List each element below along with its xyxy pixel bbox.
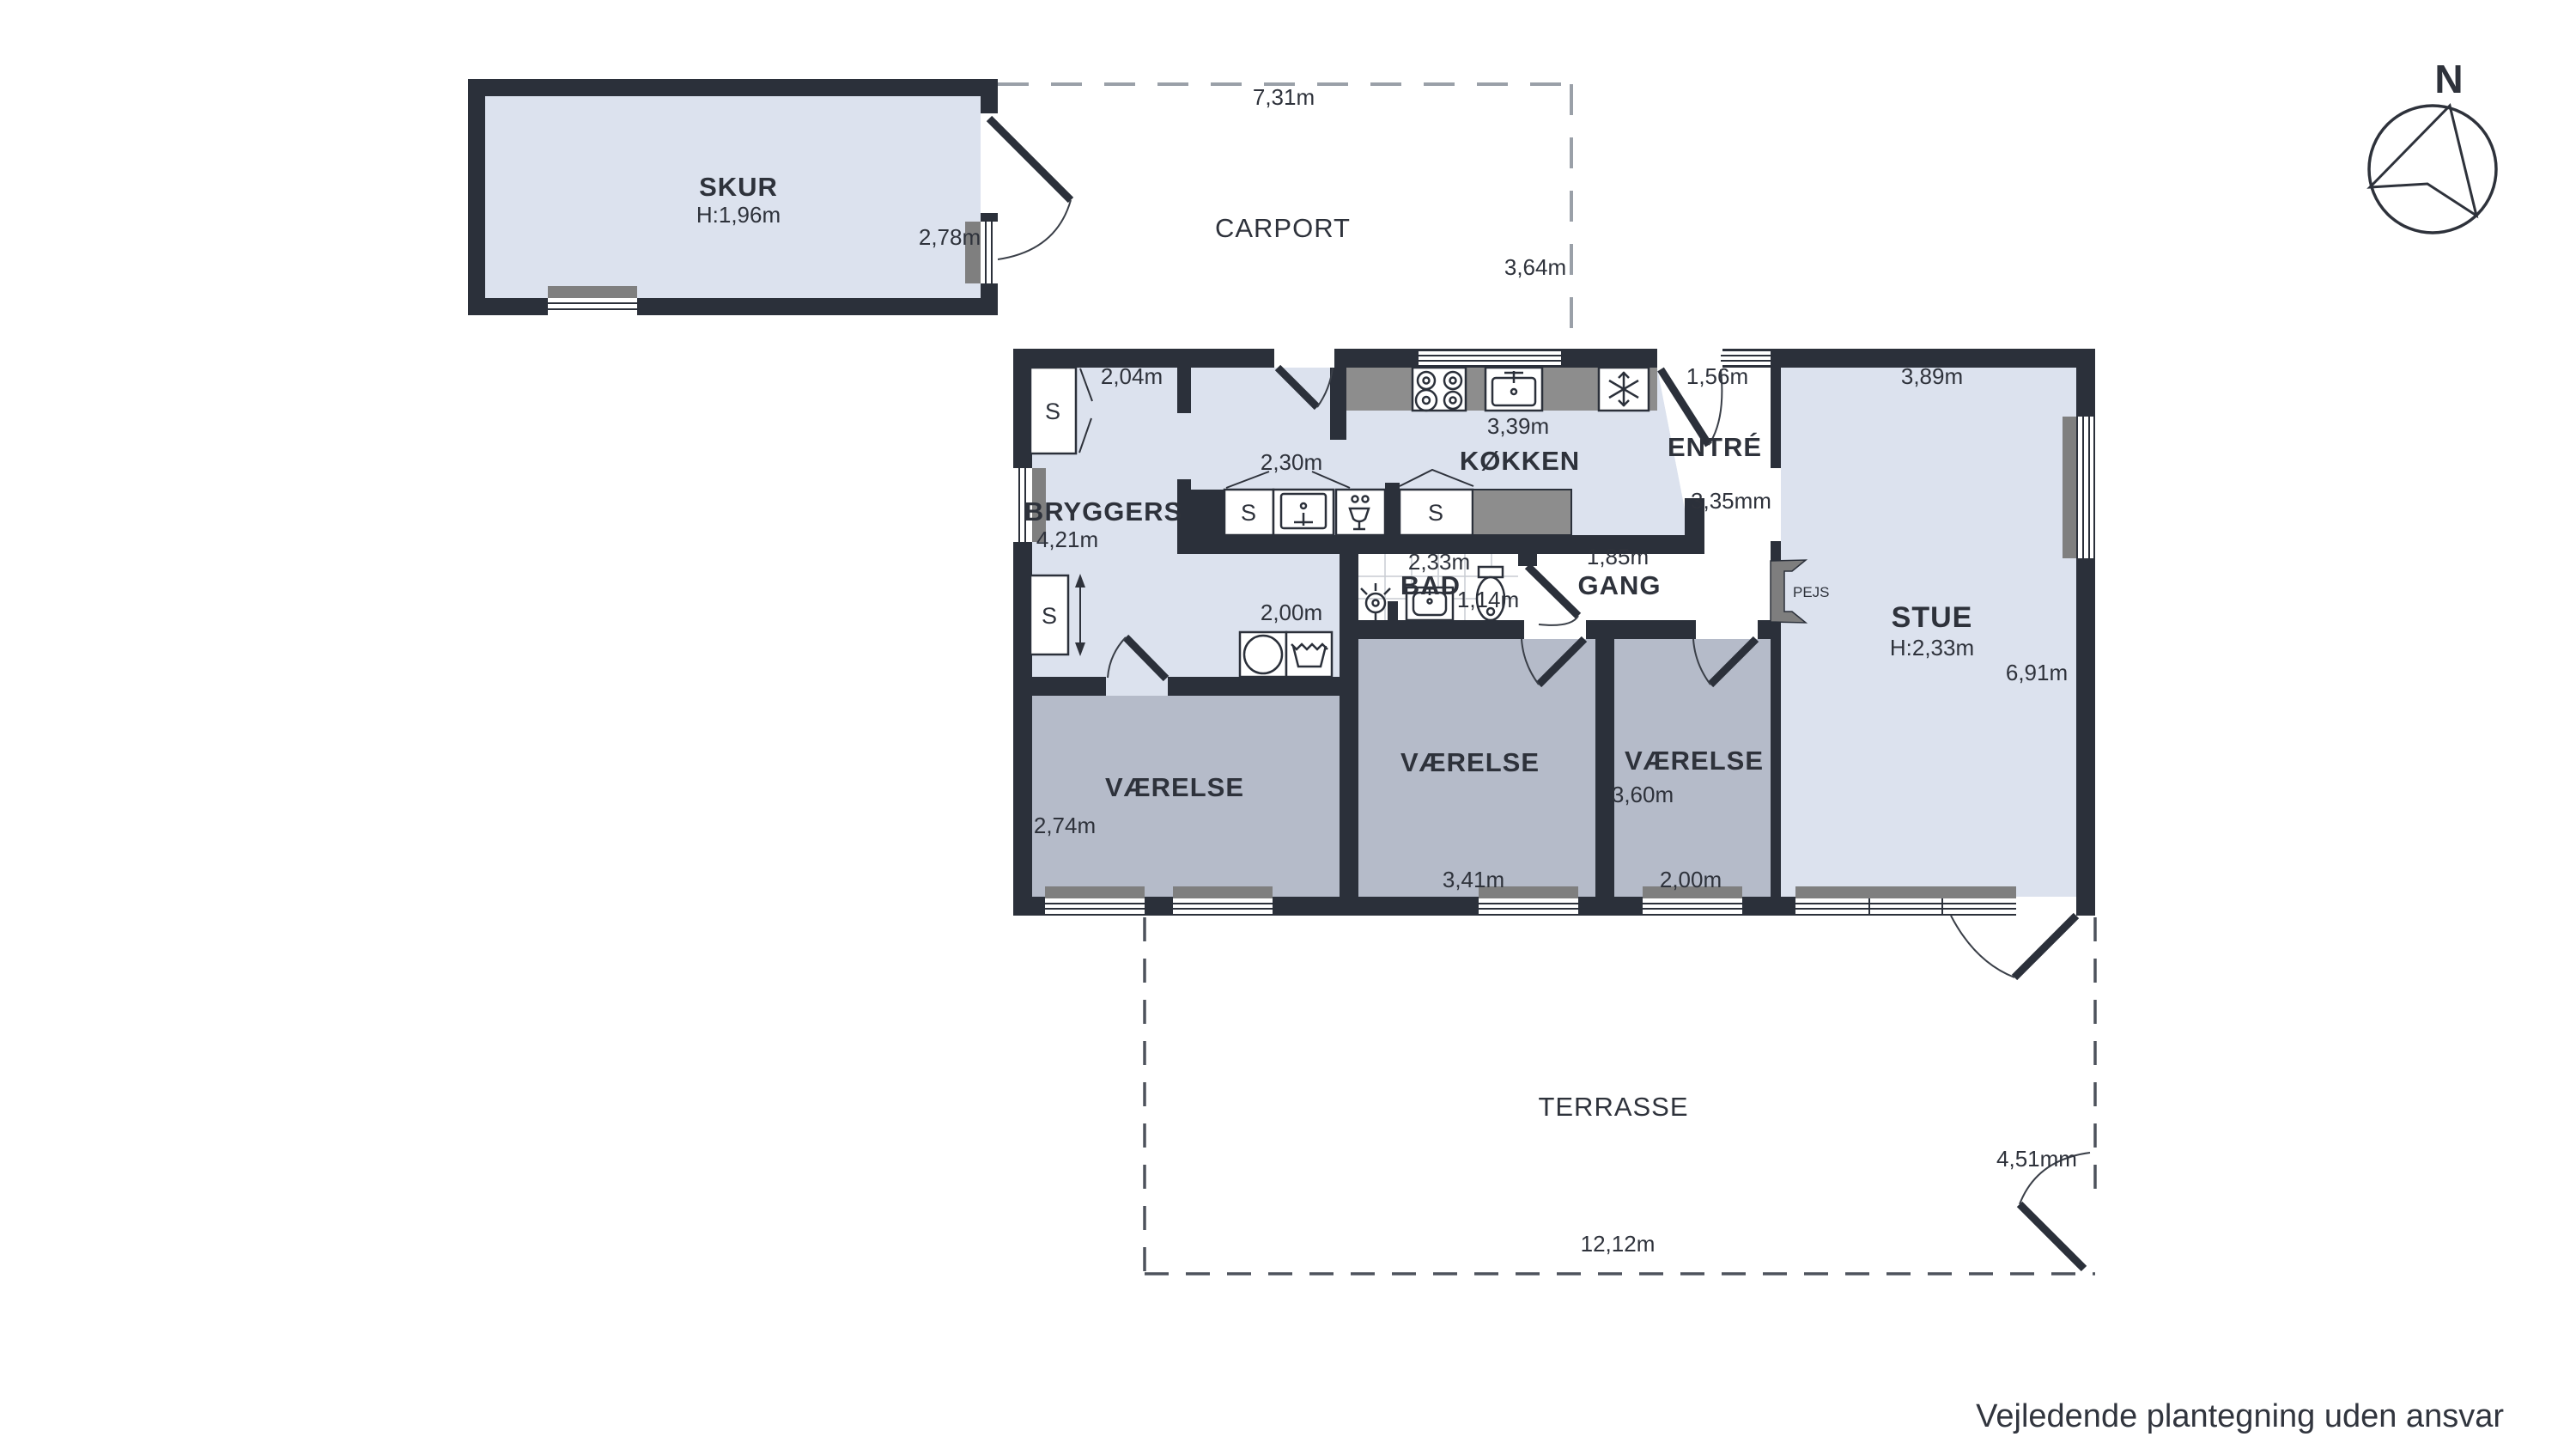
vaerelse-right-door-gap bbox=[1696, 620, 1758, 639]
bad-inner-width: 1,14m bbox=[1457, 587, 1519, 612]
skur-bottom-window bbox=[548, 298, 637, 315]
entre-door-width: 1,56m bbox=[1686, 363, 1748, 389]
skur-label: SKUR bbox=[699, 172, 778, 202]
bryggers-closet-width: 2,04m bbox=[1101, 363, 1163, 389]
vaerelse-left-window-1 bbox=[1045, 886, 1145, 914]
laundry-sink-icon bbox=[1286, 632, 1332, 677]
terrasse-label: TERRASSE bbox=[1538, 1092, 1688, 1122]
kokken-width: 3,39m bbox=[1487, 413, 1549, 439]
terrace-door-gap bbox=[2016, 897, 2076, 916]
house-wall-left bbox=[1013, 349, 1032, 916]
skur-room: SKUR H:1,96m 2,78m bbox=[468, 79, 1071, 315]
fireplace-label: PEJS bbox=[1793, 584, 1830, 600]
entre-stue-pass bbox=[1771, 468, 1781, 541]
wall-stub-kitchen bbox=[1330, 368, 1346, 440]
gang-width: 1,85m bbox=[1587, 544, 1649, 569]
island-closet-1-label: S bbox=[1241, 500, 1256, 526]
entre-label: ENTRÉ bbox=[1668, 432, 1762, 462]
skur-height-label: H:1,96m bbox=[696, 202, 781, 228]
compass-north-label: N bbox=[2434, 57, 2463, 101]
stue-label: STUE bbox=[1892, 601, 1973, 634]
carport-label: CARPORT bbox=[1215, 213, 1351, 243]
bryggers-nook-width: 2,00m bbox=[1261, 600, 1322, 625]
stue-terrace-door-leaf bbox=[2014, 916, 2076, 977]
vaerelse-right-width: 2,00m bbox=[1660, 867, 1722, 892]
stue-bottom-window bbox=[1795, 886, 2016, 914]
house: S S bbox=[1013, 349, 2095, 977]
wall-bryggers-vaerelse bbox=[1013, 677, 1340, 696]
carport-door-gap bbox=[1274, 349, 1334, 368]
bryggers-label: BRYGGERS bbox=[1024, 496, 1182, 527]
skur-door-leaf bbox=[989, 119, 1071, 200]
vaerelse-mid-width: 3,41m bbox=[1443, 867, 1504, 892]
closet-top-label: S bbox=[1045, 399, 1060, 424]
wall-vaerelse-mid-right bbox=[1595, 639, 1614, 916]
bryggers-island-width: 2,30m bbox=[1261, 449, 1322, 475]
disclaimer-text: Vejledende plantegning uden ansvar bbox=[1976, 1398, 2504, 1434]
stue-height: H:2,33m bbox=[1890, 635, 1974, 661]
island-wall-stub bbox=[1385, 483, 1400, 542]
terrasse-depth: 4,51mm bbox=[1996, 1146, 2077, 1172]
skur-bottom-window-sill bbox=[548, 286, 637, 298]
island-counter bbox=[1473, 490, 1571, 535]
vaerelse-left-label: VÆRELSE bbox=[1105, 772, 1244, 802]
bad-label: BAD bbox=[1400, 570, 1461, 600]
stue-depth: 6,91m bbox=[2006, 660, 2068, 685]
stue-terrace-door-swing bbox=[1951, 916, 2014, 977]
carport-width-label: 7,31m bbox=[1253, 84, 1315, 110]
vaerelse-right-label: VÆRELSE bbox=[1625, 746, 1764, 776]
compass-needle bbox=[2370, 106, 2476, 216]
vaerelse-mid-door-gap bbox=[1524, 620, 1586, 639]
wall-bad-right-top bbox=[1518, 554, 1537, 566]
carport-depth-label: 3,64m bbox=[1504, 254, 1566, 280]
bryggers-depth: 4,21m bbox=[1036, 527, 1098, 552]
terrasse-width: 12,12m bbox=[1581, 1231, 1656, 1257]
stue-right-window bbox=[2063, 417, 2093, 558]
vaerelse-left-window-2 bbox=[1173, 886, 1273, 914]
skur-width-label: 2,78m bbox=[919, 224, 981, 250]
floor-plan: SKUR H:1,96m 2,78m 7,31m CARPORT 3,64m bbox=[0, 0, 2576, 1449]
island-closet-2-label: S bbox=[1428, 500, 1443, 526]
wall-bryggers-bad-vaerelse bbox=[1340, 535, 1358, 916]
entre-depth: 3,35mm bbox=[1691, 488, 1771, 514]
kitchen-window bbox=[1419, 351, 1561, 365]
terrasse-gate-leaf bbox=[2020, 1204, 2084, 1269]
gang-label: GANG bbox=[1578, 570, 1662, 600]
wall-stue-left-upper bbox=[1771, 368, 1781, 468]
skur-door-swing bbox=[998, 200, 1071, 259]
vaerelse-left-width: 2,74m bbox=[1034, 813, 1096, 838]
skur-right-window bbox=[981, 222, 998, 283]
wall-block-island-left bbox=[1191, 490, 1225, 535]
kitchen-counter bbox=[1346, 368, 1657, 411]
washing-machine-icon bbox=[1240, 632, 1286, 677]
stue-width: 3,89m bbox=[1901, 363, 1963, 389]
vaerelse-right-depth: 3,60m bbox=[1612, 782, 1674, 807]
kitchen-island: S S bbox=[1224, 483, 1571, 542]
wall-stub-bryggers bbox=[1177, 368, 1191, 413]
kokken-label: KØKKEN bbox=[1460, 446, 1580, 476]
terrasse-area: TERRASSE 12,12m 4,51mm bbox=[1145, 917, 2095, 1274]
compass: N bbox=[2369, 57, 2496, 233]
closet-bottom-label: S bbox=[1042, 603, 1057, 629]
vaerelse-mid-label: VÆRELSE bbox=[1400, 747, 1540, 777]
bad-wall-stub bbox=[1388, 601, 1398, 620]
carport-area: 7,31m CARPORT 3,64m bbox=[998, 84, 1571, 347]
vaerelse-left-door-gap bbox=[1106, 677, 1168, 696]
